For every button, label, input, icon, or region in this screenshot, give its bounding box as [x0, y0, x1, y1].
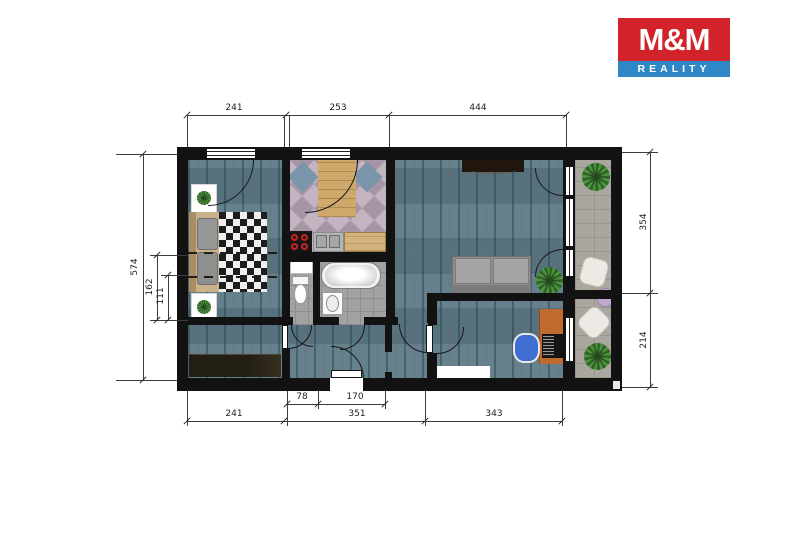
extension-line [389, 115, 390, 147]
dimension-line [187, 115, 566, 116]
wall-segment [282, 349, 290, 378]
dimension-line [287, 404, 385, 405]
dimension-label: 111 [156, 287, 166, 304]
wall-segment [427, 353, 437, 378]
wall-segment [282, 158, 290, 254]
wardrobe [189, 354, 281, 377]
wall-segment [282, 252, 395, 262]
sink-bowl-icon [326, 295, 339, 312]
dimension-line [650, 152, 651, 387]
balcony-door [565, 317, 574, 362]
stove-burner-icon [291, 243, 298, 250]
sink-basin [329, 235, 340, 248]
wall-segment [282, 254, 290, 325]
balcony-divider-wall [575, 290, 611, 299]
dimension-label: 241 [225, 103, 242, 113]
window [301, 148, 351, 159]
wall-segment [177, 378, 622, 391]
wall-segment [313, 317, 339, 325]
dimension-label: 241 [225, 409, 242, 419]
extension-line [187, 115, 188, 147]
dimension-label: 343 [485, 409, 502, 419]
extension-line [287, 391, 288, 426]
mm-reality-logo: M&M [618, 18, 730, 61]
balcony-door [565, 249, 574, 277]
dimension-label: 253 [329, 103, 346, 113]
laptop-keyboard-icon [542, 334, 555, 358]
extension-line [289, 115, 290, 147]
kitchen-counter [344, 232, 386, 252]
entrance-door-opening [330, 378, 363, 391]
dimension-label: 354 [639, 213, 649, 230]
potted-plant-icon [197, 300, 211, 314]
office-chair [513, 333, 540, 363]
wall-segment [364, 317, 398, 325]
dimension-label: 574 [130, 258, 140, 275]
wall-segment [385, 325, 392, 352]
sofa-cushion [493, 258, 529, 284]
extension-line [318, 391, 319, 409]
sofa-backrest [452, 285, 531, 293]
pillow [197, 218, 218, 250]
dimension-line [187, 421, 562, 422]
stove-burner-icon [291, 234, 298, 241]
sofa-cushion [455, 258, 491, 284]
wall-segment [427, 301, 437, 323]
door-swing-arc [162, 114, 254, 206]
extension-line [622, 387, 658, 388]
balcony-door [565, 166, 574, 196]
extension-line [622, 152, 658, 153]
wall-segment [188, 317, 293, 325]
dimension-label: 78 [296, 392, 307, 402]
extension-line [566, 115, 567, 147]
dimension-line [168, 275, 169, 320]
extension-line [116, 380, 177, 381]
dimension-label: 162 [145, 278, 155, 295]
pillow [197, 252, 218, 285]
wall-segment [427, 293, 563, 301]
mm-reality-logo-subtitle: REALITY [618, 61, 730, 77]
bathtub-basin [325, 265, 377, 286]
wall-segment [385, 372, 392, 378]
stove-burner-icon [301, 243, 308, 250]
toilet-bowl-icon [294, 284, 307, 304]
wall-segment [313, 262, 320, 322]
balcony-plant-icon [584, 343, 611, 370]
sink-basin [316, 235, 327, 248]
stove-burner-icon [301, 234, 308, 241]
wall-segment [386, 158, 395, 325]
dimension-label: 170 [346, 392, 363, 402]
wall-segment [177, 147, 188, 391]
balcony-plant-icon [582, 163, 610, 191]
extension-line [385, 391, 386, 409]
dimension-label: 214 [639, 331, 649, 348]
tv-screen-curve [470, 166, 516, 174]
wall-segment [611, 147, 622, 391]
floor-plan-canvas: 241 253 444 78 170 241 351 343 574 162 1… [0, 0, 800, 533]
window [206, 148, 256, 159]
window [565, 198, 574, 247]
dimension-label: 444 [469, 103, 486, 113]
office-doormat [430, 366, 490, 378]
dashed-partition-line [188, 276, 282, 278]
dashed-partition-line [188, 252, 282, 254]
extension-line [284, 115, 285, 147]
extension-line [116, 154, 177, 155]
wall-end-cap [613, 381, 620, 389]
extension-line [622, 293, 658, 294]
dimension-label: 351 [348, 409, 365, 419]
laptop-screen-icon [555, 334, 563, 358]
dimension-line [143, 154, 144, 380]
door-leaf [282, 325, 288, 349]
